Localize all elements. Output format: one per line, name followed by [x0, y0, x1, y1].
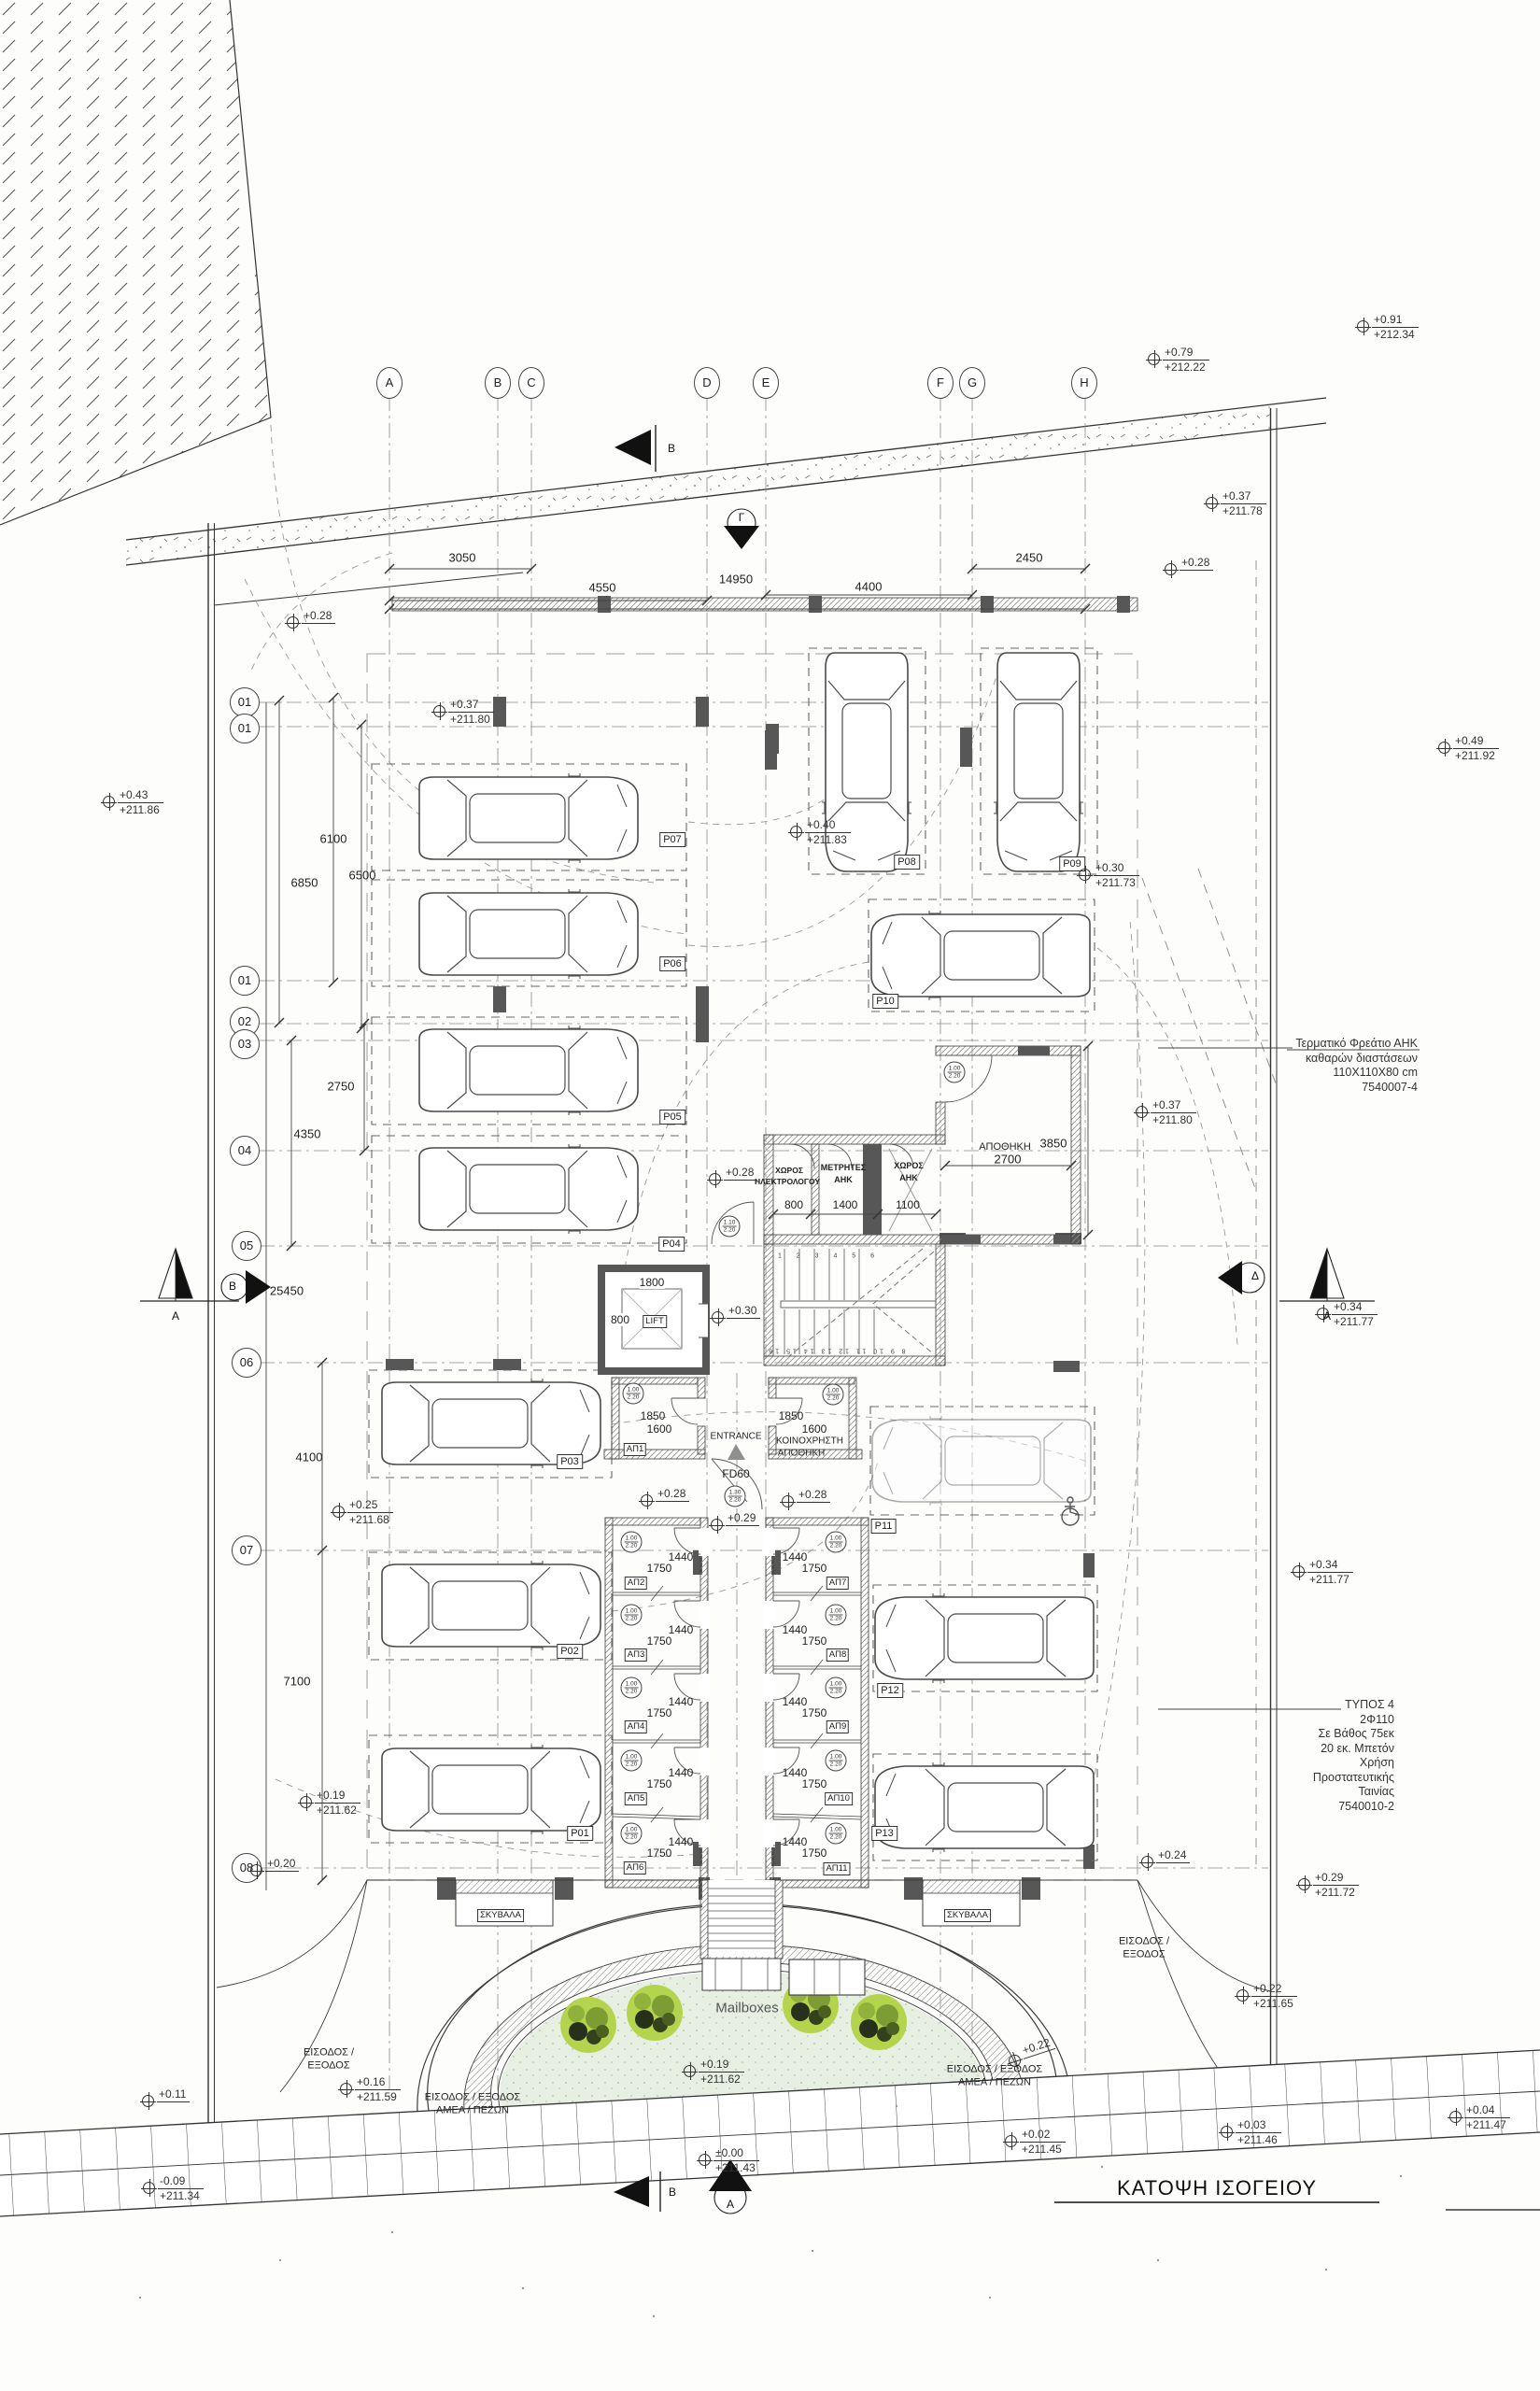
dim-1400: 1400	[833, 1198, 858, 1211]
neighbour-plot-hatch	[0, 0, 271, 525]
section-label-b-bottom: B	[669, 2186, 676, 2199]
room-meters-2: ΑΗΚ	[834, 1175, 853, 1184]
car-p09	[990, 653, 1087, 871]
plot-boundary	[208, 408, 1277, 2123]
benchmark-icon	[250, 1864, 262, 1876]
storage-label-ap7: ΑΠ7	[827, 1577, 849, 1590]
dim-4550: 4550	[589, 581, 616, 595]
door-tag: 1.002.20	[826, 1605, 847, 1626]
dim-1850-koin: 1850	[779, 1409, 804, 1422]
mailboxes-label: Mailboxes	[715, 2001, 779, 2016]
dim-1100: 1100	[896, 1198, 920, 1211]
parking-label-p04: P04	[658, 1237, 685, 1252]
spot-elevation: +0.29	[711, 1512, 759, 1531]
parking-label-p06: P06	[659, 956, 685, 971]
grid-row-06: 06	[232, 1348, 261, 1378]
section-label-a-right: A	[1323, 1309, 1331, 1323]
dim-1750: 1750	[647, 1562, 672, 1575]
dim-3050: 3050	[449, 551, 476, 565]
storage-label-ap3: ΑΠ3	[625, 1648, 647, 1662]
dim-1750: 1750	[647, 1634, 672, 1648]
benchmark-icon	[712, 1311, 724, 1323]
marker-label-gamma: Γ	[739, 511, 745, 524]
door-tag: 1.002.20	[826, 1750, 847, 1772]
car-p13	[875, 1759, 1094, 1856]
room-meters-1: ΜΕΤΡΗΤΕΣ	[821, 1163, 866, 1172]
marker-label-delta: Δ	[1251, 1269, 1259, 1282]
door-tag: 1.002.20	[826, 1677, 847, 1699]
dim-6500: 6500	[349, 869, 376, 883]
entrance-triangle-icon	[728, 1444, 745, 1460]
marker-label-b-circle: B	[229, 1280, 236, 1293]
room-ahk-1: ΧΩΡΟΣ	[894, 1161, 924, 1170]
parking-label-p13: P13	[871, 1826, 897, 1841]
spot-elevation: +0.11	[142, 2088, 190, 2107]
dim-4400: 4400	[855, 580, 883, 594]
car-p01	[382, 1741, 600, 1838]
door-tag: 1.002.20	[621, 1750, 643, 1772]
benchmark-icon	[1165, 563, 1177, 575]
spot-elevation: +0.24	[1141, 1849, 1190, 1868]
spot-elevation: +0.79+212.22	[1148, 347, 1209, 374]
benchmark-icon	[1148, 353, 1160, 365]
stair-numbers-top: 1 2 3 4 5 6	[778, 1253, 881, 1260]
spot-elevation: +0.37+211.80	[1136, 1099, 1196, 1126]
grid-row-03: 03	[230, 1029, 260, 1059]
spot-elevation: +0.29+211.72	[1298, 1872, 1359, 1899]
benchmark-icon	[143, 2182, 155, 2194]
spot-elevation: +0.43+211.86	[103, 789, 163, 816]
grid-col-g: G	[959, 367, 985, 399]
door-tag: 1.002.20	[621, 1605, 643, 1626]
note-leaders	[1158, 1048, 1420, 1709]
entrance-label: ENTRANCE	[710, 1432, 761, 1442]
benchmark-icon	[142, 2095, 154, 2107]
parking-label-p01: P01	[567, 1826, 593, 1841]
benchmark-icon	[709, 1173, 721, 1185]
dim-7100: 7100	[284, 1675, 311, 1689]
spot-elevation: +0.28	[709, 1167, 757, 1185]
dim-1750: 1750	[647, 1846, 672, 1860]
spot-elevation: +0.37+211.78	[1206, 490, 1266, 517]
door-tag: 1.002.20	[621, 1532, 643, 1553]
title-underline	[1054, 2202, 1540, 2210]
grid-col-e: E	[753, 367, 779, 399]
benchmark-icon	[699, 2154, 711, 2166]
cars	[382, 653, 1094, 1856]
section-label-b-top: B	[668, 442, 675, 455]
spot-elevation: +0.91+212.34	[1357, 314, 1419, 341]
benchmark-icon	[1206, 497, 1218, 509]
benchmark-icon	[287, 616, 299, 629]
car-p11-ghost	[872, 1412, 1091, 1509]
note-typos4: ΤΥΠΟΣ 4 2Φ110 Σε Βάθος 75εκ 20 εκ. Μπετό…	[1313, 1698, 1394, 1814]
storage-label-ap2: ΑΠ2	[625, 1577, 647, 1590]
spot-elevation: ±0.00+211.43	[699, 2147, 759, 2174]
dim-3850: 3850	[1040, 1137, 1067, 1151]
dim-6850: 6850	[291, 876, 318, 890]
door-tag: 1.002.20	[621, 1677, 643, 1699]
dim-800: 800	[784, 1198, 803, 1211]
grid-row-04: 04	[230, 1136, 260, 1166]
spot-elevation: -0.09+211.34	[143, 2175, 204, 2202]
exterior-stairs	[700, 1880, 783, 1990]
garbage-label-right: ΣΚΥΒΑΛΑ	[944, 1909, 991, 1922]
benchmark-icon	[641, 1494, 653, 1507]
benchmark-icon	[332, 1506, 345, 1518]
dim-1800: 1800	[640, 1276, 665, 1289]
storage-label-ap11: ΑΠ11	[823, 1862, 850, 1875]
dim-14950: 14950	[719, 573, 753, 587]
spot-elevation: +0.04+211.47	[1449, 2104, 1510, 2131]
benchmark-icon	[684, 2065, 696, 2077]
door-tag: 1.002.20	[621, 1823, 643, 1845]
section-label-a-left: A	[172, 1309, 179, 1323]
door-tag: 1.102.20	[719, 1216, 741, 1238]
door-tag: 1.002.20	[823, 1384, 844, 1406]
dim-1600-ap1: 1600	[647, 1422, 672, 1436]
dim-1750: 1750	[647, 1777, 672, 1790]
spot-elevation: +0.28	[287, 610, 335, 629]
grid-col-f: F	[927, 367, 954, 399]
benchmark-icon	[1141, 1856, 1153, 1868]
north-marker-label: A	[727, 2198, 734, 2211]
benchmark-icon	[1438, 742, 1450, 754]
storage-label-ap1: ΑΠ1	[624, 1443, 646, 1456]
spot-elevation: +0.30	[712, 1305, 760, 1323]
entrance-exit-amea-right: ΕΙΣΟΔΟΣ / ΕΞΟΔΟΣ ΑΜΕΑ / ΠΕΖΩΝ	[947, 2063, 1042, 2089]
dim-1750: 1750	[802, 1562, 827, 1575]
dim-1850-ap1: 1850	[641, 1409, 666, 1422]
dim-1600-koin: 1600	[802, 1422, 827, 1436]
entrance-exit-left: ΕΙΣΟΔΟΣ / ΕΞΟΔΟΣ	[304, 2046, 354, 2073]
benchmark-icon	[1298, 1878, 1310, 1890]
room-electrician-1: ΧΩΡΟΣ	[775, 1166, 803, 1175]
parking-label-p02: P02	[557, 1644, 583, 1659]
spot-elevation: +0.20	[250, 1858, 299, 1876]
dim-1750: 1750	[802, 1777, 827, 1790]
storage-label-ap5: ΑΠ5	[625, 1792, 647, 1805]
benchmark-icon	[1357, 320, 1369, 332]
entrance-exit-right: ΕΙΣΟΔΟΣ / ΕΞΟΔΟΣ	[1119, 1935, 1169, 1961]
parking-label-p11: P11	[871, 1519, 897, 1534]
setback-lines	[1142, 560, 1276, 1868]
room-ahk-2: ΑΗΚ	[899, 1173, 918, 1182]
grid-row-07: 07	[232, 1535, 261, 1565]
storage-label-ap4: ΑΠ4	[625, 1720, 647, 1733]
spot-elevation: +0.16+211.59	[340, 2076, 401, 2103]
door-tag: 1.002.20	[826, 1532, 847, 1553]
spot-elevation: +0.40+211.83	[790, 819, 851, 846]
benchmark-icon	[782, 1495, 794, 1507]
benchmark-icon	[103, 796, 115, 808]
dim-6100: 6100	[320, 832, 347, 846]
room-koinoxristi-1: ΚΟΙΝΟΧΡΗΣΤΗ	[776, 1436, 843, 1447]
grid-col-d: D	[694, 367, 720, 399]
room-koinoxristi-2: ΑΠΟΘΗΚΗ	[778, 1449, 826, 1459]
benchmark-icon	[1293, 1565, 1305, 1577]
benchmark-icon	[1221, 2126, 1233, 2138]
parking-label-p05: P05	[659, 1110, 685, 1125]
grid-row-05: 05	[232, 1231, 261, 1261]
door-tag: 1.302.20	[725, 1486, 746, 1507]
benchmark-icon	[1449, 2111, 1462, 2123]
door-tag: 1.002.20	[826, 1823, 847, 1845]
dim-800-lift: 800	[611, 1313, 629, 1326]
benchmark-icon	[1079, 869, 1091, 881]
dim-2700: 2700	[995, 1153, 1022, 1167]
car-p10	[871, 907, 1090, 1004]
benchmark-icon	[1136, 1106, 1148, 1118]
door-tag: 1.002.20	[944, 1062, 966, 1083]
spot-elevation: +0.25+211.68	[332, 1499, 393, 1526]
entrance-exit-amea-left: ΕΙΣΟΔΟΣ / ΕΞΟΔΟΣ ΑΜΕΑ / ΠΕΖΩΝ	[425, 2091, 520, 2117]
dim-25450: 25450	[270, 1284, 304, 1298]
benchmark-icon	[1236, 1989, 1249, 2002]
car-p12	[875, 1590, 1094, 1687]
spot-elevation: +0.34+211.77	[1293, 1559, 1353, 1586]
plan-linework	[0, 0, 1540, 2391]
grid-row-01c: 01	[230, 966, 260, 996]
parking-label-p03: P03	[557, 1454, 583, 1469]
garbage-label-left: ΣΚΥΒΑΛΑ	[477, 1909, 524, 1922]
room-lift: LIFT	[643, 1315, 667, 1328]
benchmark-icon	[790, 826, 802, 838]
benchmark-icon	[1005, 2135, 1017, 2147]
door-tag: 1.002.20	[623, 1383, 644, 1405]
spot-elevation: +0.28	[1165, 557, 1213, 575]
storage-label-ap6: ΑΠ6	[624, 1861, 646, 1875]
top-wall	[392, 596, 1137, 613]
dim-1750: 1750	[647, 1706, 672, 1719]
benchmark-icon	[433, 705, 445, 717]
spot-elevation: +0.19+211.62	[684, 2059, 744, 2086]
spot-elevation: +0.03+211.46	[1221, 2119, 1281, 2146]
parking-label-p10: P10	[872, 994, 898, 1009]
dim-1750: 1750	[802, 1706, 827, 1719]
car-p06	[419, 885, 638, 983]
spot-elevation: +0.30+211.73	[1079, 862, 1139, 889]
floor-plan-sheet: A B C D E F G H 01 01 01 02 03 04 05 06 …	[0, 0, 1540, 2391]
room-apothiki: ΑΠΟΘΗΚΗ	[979, 1141, 1031, 1153]
grid-col-h: H	[1071, 367, 1097, 399]
grid-row-01b: 01	[230, 714, 260, 743]
parking-label-p08: P08	[894, 855, 920, 870]
car-p05	[419, 1022, 638, 1119]
storage-label-ap8: ΑΠ8	[827, 1648, 849, 1662]
car-p02	[382, 1557, 600, 1654]
benchmark-icon	[340, 2083, 352, 2095]
spot-elevation: +0.02+211.45	[1005, 2129, 1066, 2156]
dim-2450: 2450	[1016, 551, 1043, 565]
spot-elevation: +0.28	[782, 1489, 830, 1507]
mailbox-kiosk	[789, 1959, 865, 1995]
benchmark-icon	[300, 1796, 312, 1808]
spot-elevation: +0.49+211.92	[1438, 735, 1499, 762]
grid-col-b: B	[485, 367, 511, 399]
storage-label-ap9: ΑΠ9	[827, 1720, 849, 1733]
grid-col-c: C	[518, 367, 544, 399]
spot-elevation: +0.28	[641, 1488, 689, 1507]
dim-1750: 1750	[802, 1634, 827, 1648]
dim-2750: 2750	[328, 1080, 355, 1094]
benchmark-icon	[711, 1519, 723, 1531]
car-p04	[419, 1140, 638, 1238]
sheet-title: ΚΑΤΟΨΗ ΙΣΟΓΕΙΟΥ	[1117, 2176, 1317, 2200]
columns	[386, 697, 1095, 1900]
dim-1750: 1750	[802, 1846, 827, 1860]
fd60-label: FD60	[722, 1467, 749, 1480]
grid-col-a: A	[376, 367, 403, 399]
parking-label-p07: P07	[659, 832, 685, 847]
spot-elevation: +0.22+211.65	[1236, 1983, 1297, 2010]
car-p07	[419, 770, 638, 867]
stair-numbers-bottom: 8 9 10 11 12 13 14 15 16	[766, 1348, 905, 1354]
storage-label-ap10: ΑΠ10	[825, 1792, 853, 1805]
dim-4350: 4350	[294, 1127, 321, 1141]
parking-label-p12: P12	[877, 1683, 903, 1698]
dim-4100: 4100	[296, 1450, 323, 1464]
spot-elevation: +0.19+211.62	[300, 1790, 360, 1817]
room-electrician-2: ΗΛΕΚΤΡΟΛΟΓΟΥ	[755, 1177, 820, 1186]
spot-elevation: +0.37+211.80	[433, 699, 494, 726]
note-ahk-shaft: Τερματικό Φρεάτιο ΑΗΚ καθαρών διαστάσεων…	[1295, 1037, 1418, 1095]
